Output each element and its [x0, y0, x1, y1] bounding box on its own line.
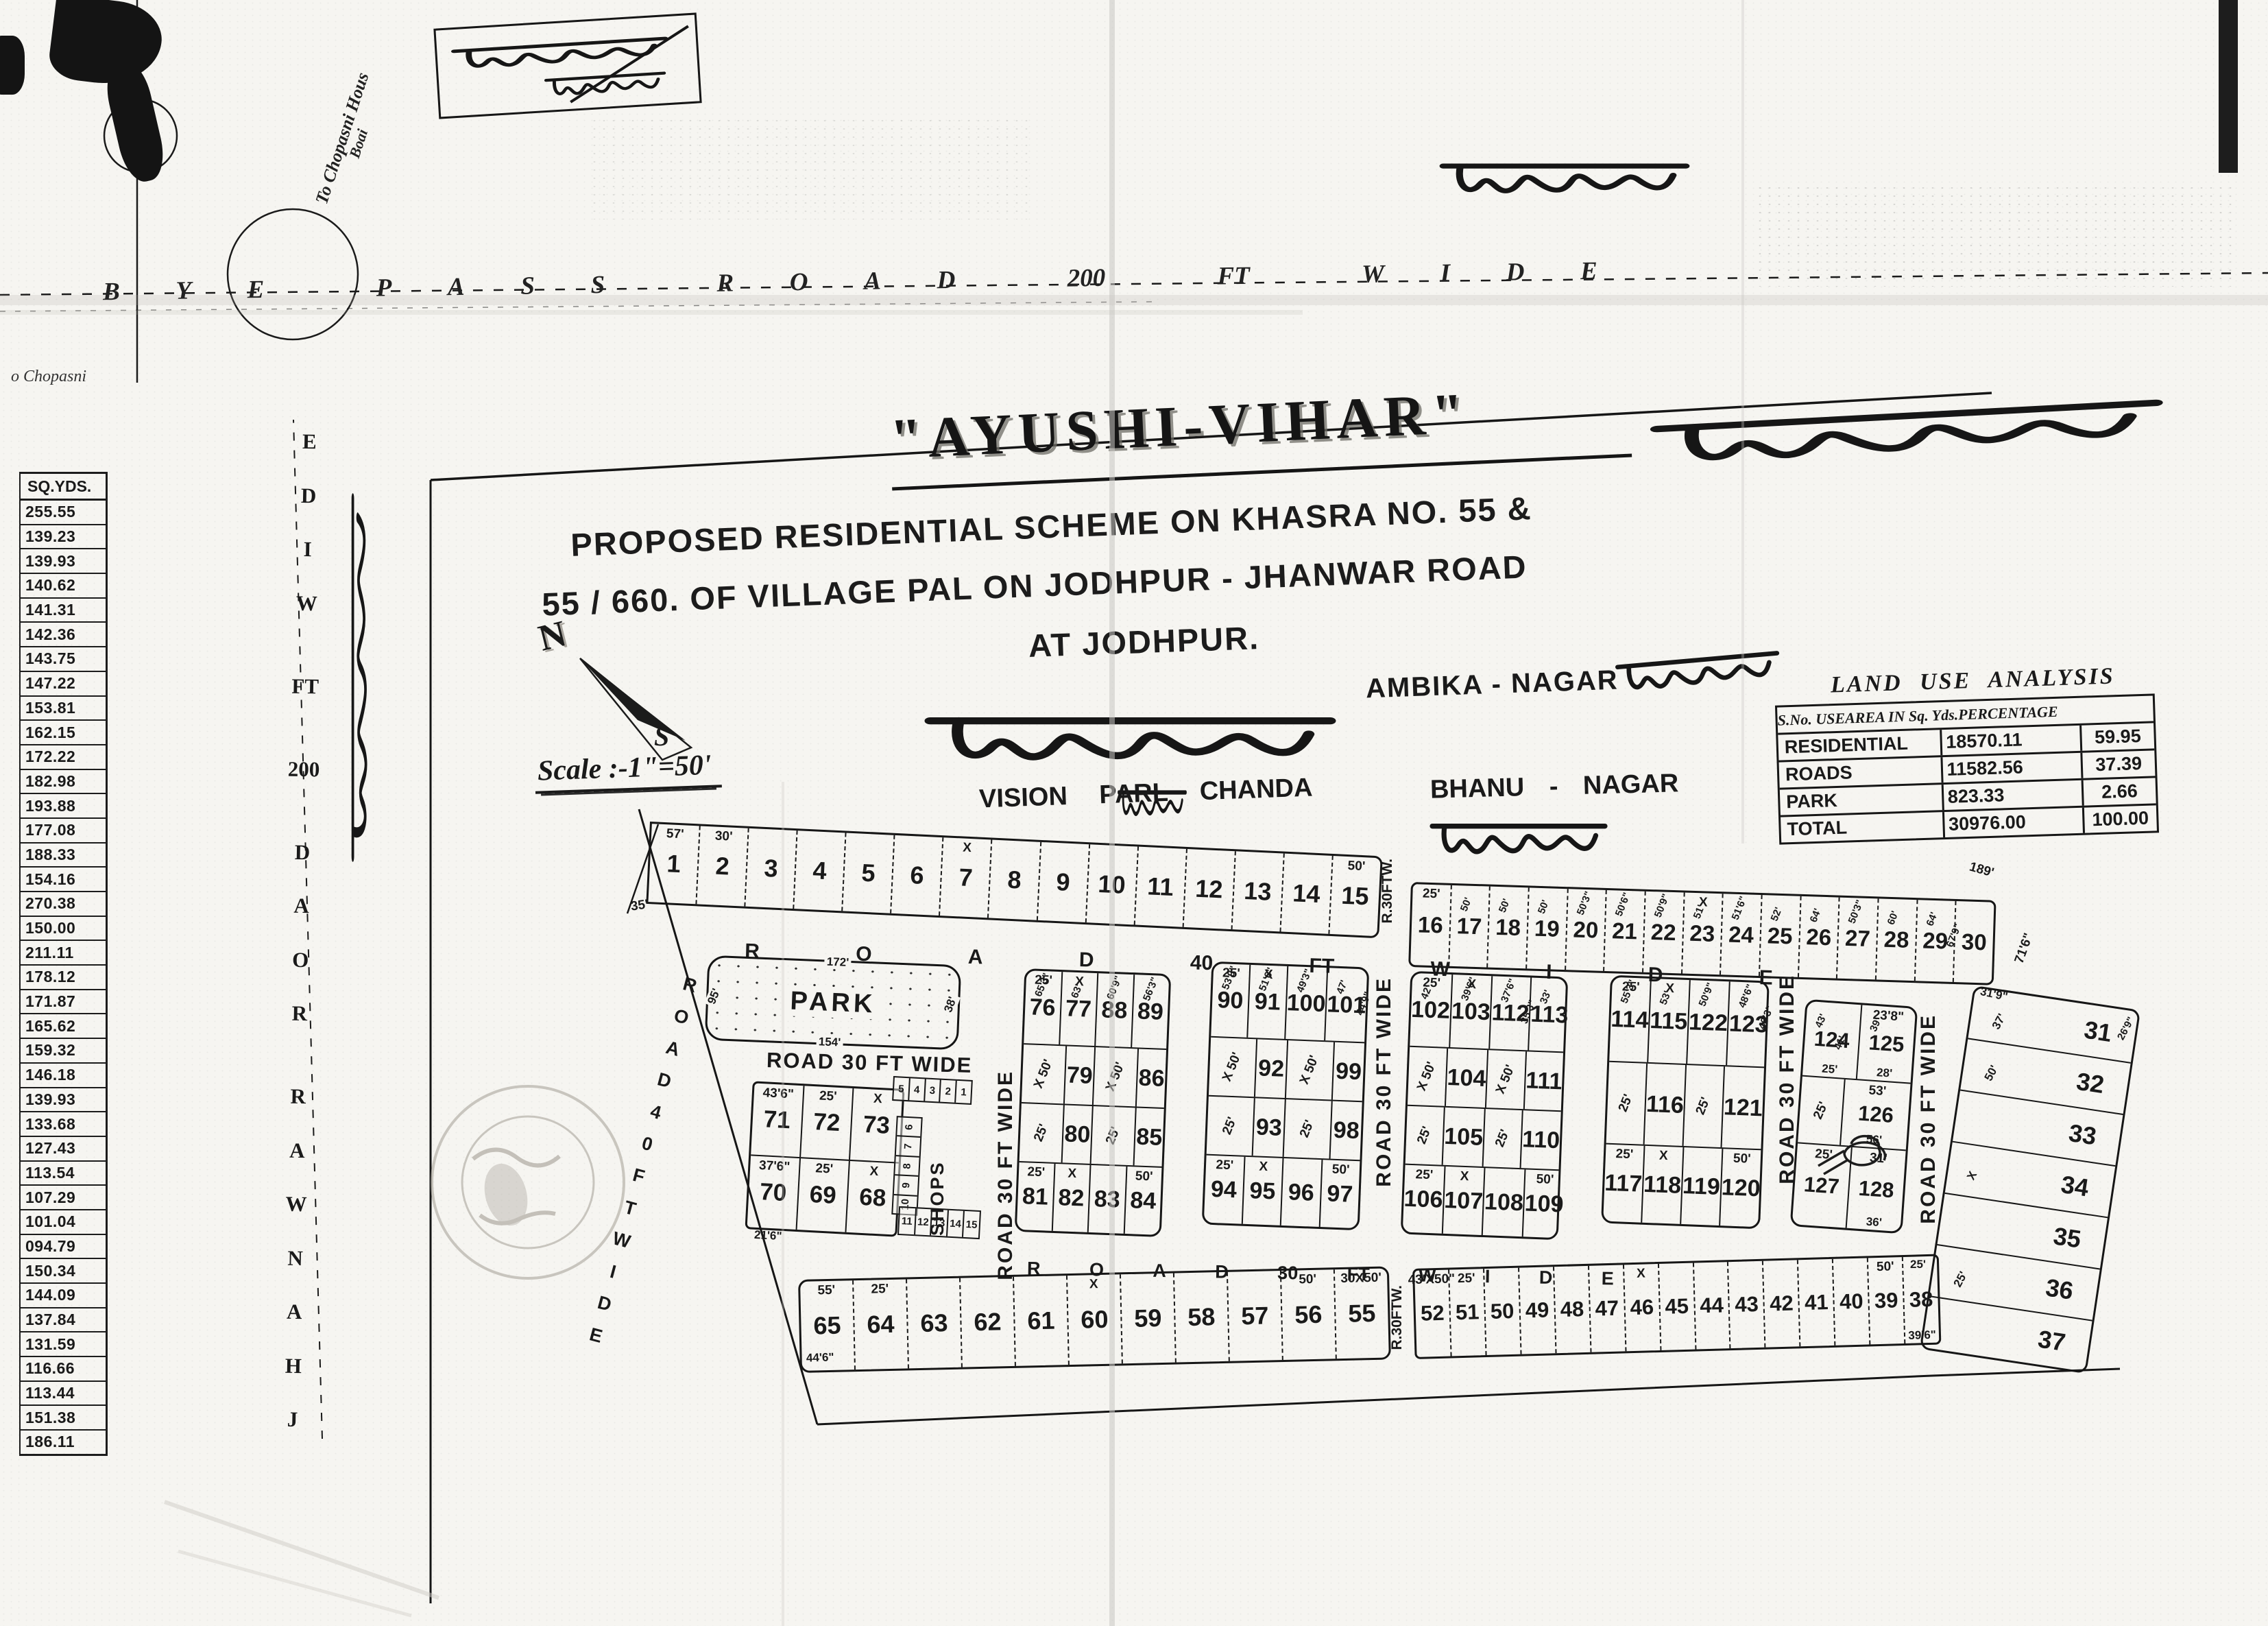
- plot-cell: 25'55'3"114: [1609, 977, 1652, 1062]
- plot-cell: 104: [1446, 1049, 1488, 1108]
- scale-label: Scale :-1"=50': [534, 748, 722, 793]
- plot-block-90-101: 25'53'9"90 X51'6"91 49'3"100 47'44'9"101…: [1202, 961, 1370, 1231]
- plot-cell: 49: [1519, 1267, 1556, 1354]
- plot-cell: 25'127: [1792, 1143, 1853, 1228]
- plot-cell: 25' 64: [854, 1279, 909, 1370]
- sqyds-value: 188.33: [21, 844, 106, 868]
- plot-cell: 49'3"100: [1286, 966, 1329, 1040]
- plot-cell: 40: [1833, 1258, 1870, 1345]
- plot-row-1-15: 57' 1 30' 2 3 4 5: [646, 822, 1382, 938]
- plot-block-114-123: 25'55'3"114 X53'115 50'9"122 48'6"46'3"1…: [1601, 975, 1770, 1230]
- plot-number: 14: [1292, 878, 1320, 909]
- sqyds-value: 116.66: [21, 1357, 106, 1382]
- plot-cell: 5: [843, 833, 895, 913]
- road-30ft-label: ROAD 30 FT WIDE: [767, 1048, 973, 1078]
- plot-number: 5: [861, 859, 876, 888]
- dimension-label: 189': [1968, 859, 1996, 881]
- road-letter: O: [671, 1005, 690, 1029]
- land-use-use: ROADS: [1779, 759, 1941, 785]
- plot-number: 15: [1340, 881, 1369, 911]
- plot-number: 10: [1098, 870, 1126, 900]
- plot-cell: 57' 1: [648, 824, 700, 904]
- plot-cell: 47'44'9"101: [1325, 968, 1367, 1042]
- ambika-nagar-label: AMBIKA - NAGAR: [1365, 665, 1619, 705]
- scan-noise: [590, 117, 1028, 219]
- sqyds-value: 162.15: [21, 721, 106, 745]
- plot-cell: 25'117: [1603, 1145, 1645, 1223]
- sqyds-value: 094.79: [21, 1235, 106, 1260]
- plot-number: 38: [1909, 1287, 1933, 1313]
- sqyds-value: 144.09: [21, 1284, 106, 1308]
- plot-cell: 48'6"46'3"123: [1728, 981, 1770, 1066]
- sqyds-value: 113.44: [21, 1382, 106, 1407]
- plot-cell: 4: [794, 830, 846, 911]
- road-letter: E: [247, 274, 264, 304]
- scan-artifact: [101, 57, 169, 185]
- sqyds-value: 151.38: [21, 1406, 106, 1431]
- sqyds-value: 139.93: [21, 1088, 106, 1113]
- plot-cell: 80: [1063, 1105, 1094, 1164]
- plot-cell: 13: [1232, 851, 1284, 931]
- plot-cell: 50'84: [1124, 1167, 1161, 1235]
- road-letter: J: [287, 1407, 298, 1432]
- road-letter: W: [610, 1228, 633, 1253]
- shop-cell: 11: [899, 1208, 917, 1234]
- plot-number: 6: [910, 861, 925, 890]
- scan-artifact: [47, 0, 166, 90]
- plot-cell: 11: [1135, 847, 1187, 927]
- plot-dim-cell: 25': [1020, 1103, 1065, 1162]
- shop-cell: 8: [895, 1156, 919, 1177]
- jhanwar-road-label: JHANWARROAD200FTWIDE: [276, 429, 326, 1433]
- plot-number: 59: [1134, 1304, 1162, 1333]
- sqyds-value: 139.23: [21, 525, 106, 550]
- sqyds-value: 211.11: [21, 941, 106, 966]
- sqyds-value: 142.36: [21, 623, 106, 647]
- scan-artifact: [0, 36, 25, 95]
- plot-cell: 43'6"71: [751, 1083, 804, 1157]
- road-letter: D: [937, 265, 955, 294]
- plot-number: 25: [1767, 922, 1793, 949]
- plot-number: 39: [1874, 1288, 1898, 1313]
- road-letter: 40: [1190, 951, 1213, 975]
- plot-number: 31: [2082, 1016, 2114, 1048]
- road-letter: R: [290, 1084, 306, 1109]
- plot-number: 1: [666, 849, 681, 878]
- plot-cell: 25'94: [1204, 1156, 1245, 1224]
- road-letter: R: [716, 268, 734, 298]
- plot-number: 52: [1421, 1301, 1445, 1326]
- plot-cell: 45: [1659, 1263, 1696, 1350]
- plot-cell: 50' 15: [1329, 856, 1380, 936]
- plot-cell: 8: [989, 840, 1041, 920]
- plot-number: 26: [1806, 924, 1832, 951]
- handwritten-title-note: [1639, 384, 2176, 481]
- scheme-title: "AYUSHI-VIHAR": [889, 373, 1632, 491]
- road-letter: O: [790, 267, 808, 296]
- sqyds-value: 141.31: [21, 599, 106, 623]
- land-use-header: AREA IN Sq. Yds.: [1845, 706, 1959, 727]
- road-letter: 200: [288, 756, 320, 782]
- plot-cell: 53'12656': [1841, 1079, 1910, 1149]
- road-letter: S: [520, 271, 535, 300]
- land-use-area: 11582.56: [1940, 753, 2081, 782]
- shop-cell: 9: [894, 1175, 918, 1196]
- plot-cell: 25'72: [801, 1086, 854, 1160]
- plot-cell: 30X50' 55: [1335, 1269, 1389, 1359]
- shop-cell: 3: [925, 1079, 941, 1101]
- plot-dim-cell: X 50': [1486, 1050, 1527, 1109]
- plot-number: 63: [920, 1308, 948, 1338]
- plot-number: 56: [1294, 1300, 1323, 1330]
- plot-cell: 105: [1443, 1108, 1486, 1167]
- plot-number: 64: [867, 1310, 895, 1339]
- road-letter: D: [301, 483, 317, 507]
- plot-number: 34: [2059, 1170, 2090, 1202]
- road-letter: R: [291, 1001, 307, 1026]
- sqyds-value: 140.62: [21, 574, 106, 599]
- sqyds-value: 159.32: [21, 1039, 106, 1064]
- plot-number: 42: [1770, 1291, 1794, 1317]
- north-arrow-s: S: [654, 720, 669, 752]
- plot-number: 43: [1735, 1292, 1759, 1317]
- plot-number: 61: [1027, 1306, 1055, 1336]
- plot-number: 60: [1081, 1305, 1109, 1335]
- plot-number: 2: [715, 852, 730, 881]
- dimension-label: 172': [824, 955, 851, 970]
- park-area: PARK 172' 154' 95' 38': [705, 955, 962, 1051]
- road-letter: F: [630, 1164, 647, 1188]
- road-letter: D: [1078, 948, 1094, 972]
- road-30ft-label-vertical: ROAD 30 FT WIDE: [1917, 1014, 1940, 1224]
- road-letter: T: [622, 1197, 638, 1220]
- land-use-use: PARK: [1780, 787, 1942, 813]
- plot-cell: 63: [907, 1278, 963, 1369]
- plot-cell: 50' 56: [1281, 1269, 1337, 1360]
- plot-cell: 116: [1645, 1064, 1687, 1146]
- road-40ft-diagonal-label: ROAD40FTWIDE: [576, 970, 710, 1350]
- plot-cell: 50'9"122: [1687, 980, 1730, 1065]
- road-letter: D: [655, 1069, 673, 1093]
- plot-cell: 79: [1065, 1047, 1096, 1105]
- shop-cell: 14: [948, 1210, 965, 1237]
- sqyds-value: 255.55: [21, 501, 106, 525]
- sqyds-value: 131.59: [21, 1332, 106, 1357]
- road-30ft-label-vertical: ROAD 30 FT WIDE: [994, 1070, 1017, 1280]
- plot-cell: 25'106: [1403, 1165, 1445, 1234]
- road-letter: A: [664, 1037, 682, 1061]
- plot-number: 11: [1147, 872, 1174, 902]
- plot-cell: 99: [1333, 1042, 1364, 1101]
- plot-cell: 44: [1693, 1262, 1730, 1349]
- land-use-percent: 37.39: [2080, 750, 2156, 778]
- road-letter: A: [287, 1300, 302, 1324]
- sqyds-value: 107.29: [21, 1186, 106, 1210]
- sqyds-header: SQ.YDS.: [21, 474, 106, 501]
- shop-cell: 1: [956, 1081, 971, 1103]
- plot-row-38-52: 43'X50" 52 25' 51 50 49: [1412, 1254, 1941, 1359]
- dimension-label: 38': [941, 993, 961, 1016]
- plot-number: 28: [1883, 926, 1909, 953]
- road-letter: FT: [1217, 261, 1250, 291]
- road-letter: D: [1506, 257, 1524, 287]
- plot-cell: 92: [1255, 1039, 1288, 1098]
- plot-dim-cell: 25': [1406, 1106, 1445, 1165]
- plot-cell: X118: [1642, 1146, 1684, 1224]
- plot-cell: X95: [1242, 1157, 1283, 1226]
- plot-dim-cell: 25': [1798, 1077, 1846, 1145]
- road-letter: 200: [1067, 263, 1105, 293]
- plot-block-76-89: 25'65'3"76 X63'77 60'9"88 56'3"89 X 50' …: [1015, 968, 1172, 1237]
- plot-number: 37: [2036, 1325, 2068, 1357]
- plot-number: 24: [1728, 922, 1754, 948]
- plot-cell: 60'9"88: [1096, 973, 1135, 1047]
- scanned-site-plan: BYEPASSROAD200FTWIDE To Chopasni Hous Bo…: [0, 0, 2268, 1626]
- sqyds-value: 133.68: [21, 1112, 106, 1137]
- sqyds-value: 186.11: [21, 1431, 106, 1454]
- plot-cell: 25' 51: [1449, 1269, 1486, 1356]
- plot-cell: 25'65'3"76: [1024, 970, 1063, 1044]
- plot-number: 46: [1630, 1295, 1654, 1320]
- plot-number: 44: [1700, 1293, 1724, 1318]
- land-use-use: RESIDENTIAL: [1778, 732, 1940, 758]
- sqyds-value: 113.54: [21, 1162, 106, 1186]
- plot-cell: 23'8"39'12528': [1857, 1005, 1916, 1082]
- handwritten-bai-pass: [1434, 152, 1695, 204]
- plot-number: 48: [1560, 1297, 1584, 1322]
- plot-dim-cell: X 50': [1094, 1047, 1139, 1106]
- road-letter: I: [1440, 258, 1450, 287]
- plot-number: 17: [1456, 913, 1482, 940]
- plot-row-55-65: 55' 65 25' 64 63 62 61: [798, 1266, 1391, 1373]
- land-use-area: 18570.11: [1940, 726, 2080, 755]
- plot-number: 62: [974, 1307, 1002, 1337]
- road-letter: 4: [648, 1101, 664, 1125]
- sqyds-value: 101.04: [21, 1210, 106, 1235]
- plot-number: 57: [1241, 1301, 1269, 1330]
- plot-number: 12: [1194, 874, 1223, 905]
- land-use-title: LAND USE ANALYSIS: [1831, 663, 2116, 698]
- plot-number: 41: [1805, 1290, 1829, 1315]
- plot-cell: 50'120: [1720, 1149, 1762, 1227]
- road-letter: D: [294, 839, 310, 864]
- sqyds-value: 127.43: [21, 1137, 106, 1162]
- plot-number: 55: [1348, 1299, 1376, 1328]
- plot-dim-cell: X 50': [1286, 1040, 1335, 1100]
- plot-cell: 57: [1228, 1271, 1283, 1361]
- sqyds-value: 137.84: [21, 1308, 106, 1333]
- plot-number: 33: [2067, 1119, 2099, 1151]
- plot-cell: 108: [1483, 1168, 1525, 1236]
- sqyds-value: 182.98: [21, 770, 106, 795]
- scheme-subtitle-3: AT JODHPUR.: [1028, 619, 1260, 665]
- plot-cell: 119: [1681, 1147, 1723, 1226]
- dimension-label: 21'6": [754, 1228, 782, 1243]
- shop-cell: 6: [897, 1117, 921, 1138]
- plot-cell: 93: [1253, 1098, 1286, 1157]
- plot-cell: 85: [1135, 1108, 1164, 1166]
- handwritten-jhanwar: [346, 486, 373, 870]
- plot-cell: 14: [1281, 854, 1333, 934]
- road-letter: FT: [291, 673, 319, 699]
- plot-number: 35: [2051, 1221, 2083, 1254]
- sqyds-value: 165.62: [21, 1014, 106, 1039]
- plot-cell: X 46: [1624, 1264, 1661, 1351]
- sqyds-value: 178.12: [21, 966, 106, 990]
- vision-parl-chanda-label: VISION PARL CHANDA: [978, 774, 1313, 815]
- plot-number: 58: [1187, 1302, 1216, 1332]
- dimension-label: 35': [630, 897, 649, 914]
- road-letter: H: [285, 1353, 302, 1378]
- sqyds-value: 150.00: [21, 917, 106, 942]
- plot-cell: X51'6"91: [1248, 965, 1288, 1039]
- plot-dim-cell: 25': [1606, 1062, 1648, 1145]
- road-letter: A: [967, 946, 983, 970]
- land-use-percent: 59.95: [2079, 723, 2155, 750]
- dimension-label: 154': [816, 1035, 843, 1050]
- handwritten-bhanu: [1426, 812, 1611, 865]
- sqyds-value: 139.93: [21, 549, 106, 574]
- plot-number: 45: [1665, 1294, 1689, 1319]
- plot-dim-cell: 25': [1484, 1109, 1523, 1168]
- plot-number: 18: [1495, 914, 1521, 941]
- plot-cell: 50' 39: [1868, 1257, 1905, 1344]
- plot-cell: 83: [1089, 1165, 1127, 1234]
- plot-number: 8: [1007, 865, 1022, 895]
- plot-cell: 43'41'12425': [1802, 1001, 1862, 1079]
- land-use-use: TOTAL: [1781, 814, 1942, 840]
- plot-cell: 41: [1798, 1259, 1835, 1346]
- plot-cell: X82: [1052, 1164, 1091, 1232]
- plot-cell: X 60: [1067, 1274, 1123, 1365]
- plot-cell: 33'113: [1529, 978, 1569, 1052]
- plot-dim-cell: 25': [1091, 1106, 1137, 1165]
- round-stamp: [432, 1086, 624, 1278]
- road-letter: W: [1362, 259, 1385, 289]
- plot-cell: 47: [1589, 1265, 1626, 1352]
- handwritten-ambika: [1610, 640, 1785, 703]
- plot-cell: 10: [1086, 844, 1138, 924]
- plot-block-68-73: 43'6"71 25'72 X73 37'6"70 25'69 X68: [745, 1081, 904, 1236]
- plot-cell: 111: [1525, 1051, 1563, 1110]
- road-letter: P: [376, 273, 391, 302]
- sqyds-value: 143.75: [21, 647, 106, 672]
- plot-number: 49: [1525, 1298, 1549, 1323]
- shop-cell: 15: [963, 1211, 980, 1238]
- shops-label: SHOPS: [927, 1126, 948, 1236]
- road-letter: A: [289, 1138, 305, 1162]
- plot-cell: 31'12836': [1847, 1147, 1906, 1232]
- road-letter: Y: [176, 276, 191, 305]
- plot-cell: 43: [1728, 1261, 1765, 1348]
- scan-noise: [1755, 184, 2235, 287]
- plot-cell: 37'6"70: [747, 1156, 801, 1230]
- plot-cell: X68: [847, 1161, 899, 1235]
- plot-number: 29: [1922, 927, 1949, 954]
- plot-number: 3: [764, 854, 779, 883]
- land-use-area: 823.33: [1941, 780, 2082, 810]
- road-letter: B: [103, 276, 120, 306]
- scan-fold: [1109, 0, 1115, 1626]
- plot-block-124-128: 43'41'12425' 23'8"39'12528' 25' 53'12656…: [1790, 999, 1918, 1234]
- sqyds-value: 153.81: [21, 697, 106, 721]
- plot-cell: 6: [891, 835, 943, 916]
- plot-cell: 30: [1954, 901, 1994, 983]
- road-letter: E: [1580, 256, 1597, 285]
- sqyds-value: 150.34: [21, 1259, 106, 1284]
- plot-cell: 121: [1722, 1066, 1764, 1149]
- sqyds-value: 177.08: [21, 819, 106, 844]
- sqyds-value: 193.88: [21, 794, 106, 819]
- plot-cell: 62: [961, 1277, 1016, 1367]
- plot-cell: X39'6"103: [1450, 975, 1493, 1049]
- plot-cell: 25'42'102: [1410, 973, 1453, 1047]
- scan-artifact: [2219, 0, 2238, 173]
- plot-cell: X107: [1443, 1167, 1486, 1235]
- land-use-percent: 2.66: [2081, 778, 2156, 805]
- plot-cell: 37'6"35'3"112: [1491, 976, 1532, 1050]
- plot-dim-cell: X 50': [1408, 1047, 1448, 1106]
- shops-column: 678910: [891, 1116, 922, 1216]
- plot-number: 65: [813, 1311, 841, 1341]
- sqyds-value: 147.22: [21, 672, 106, 697]
- scan-streak: [0, 310, 1303, 315]
- road-letter: E: [302, 429, 317, 454]
- plot-cell: 9: [1037, 842, 1089, 922]
- plot-cell: 50'3" 27: [1837, 898, 1879, 980]
- plot-cell: 60' 28: [1877, 898, 1918, 981]
- plot-number: 32: [2075, 1067, 2106, 1099]
- plot-cell: 48: [1554, 1266, 1591, 1353]
- road-letter: I: [607, 1261, 618, 1283]
- plot-number: 27: [1845, 925, 1871, 952]
- plot-dim-cell: 25': [1284, 1099, 1333, 1159]
- plot-cell: 3: [745, 828, 797, 909]
- road-letter: E: [588, 1324, 605, 1348]
- plot-cell: 25'69: [797, 1158, 850, 1232]
- plot-column-31-37: 37' 31 26'9" 50' 32 33 X 34: [1920, 985, 2141, 1374]
- dimension-label: 71'6": [2012, 931, 2037, 966]
- road-letter: A: [864, 266, 881, 296]
- shops-row-top: 54321: [892, 1076, 973, 1105]
- shop-cell: 7: [896, 1137, 920, 1158]
- plot-number: 16: [1417, 911, 1443, 938]
- plot-cell: 64' 67'9" 29: [1916, 900, 1957, 982]
- road-letter: A: [293, 894, 309, 918]
- sqyds-value: 270.38: [21, 892, 106, 917]
- land-use-percent: 100.00: [2082, 805, 2157, 833]
- to-chopasni-label: To Chopasni Hous Boai: [302, 38, 398, 244]
- plot-number: 51: [1455, 1300, 1479, 1325]
- road-letter: I: [303, 537, 312, 562]
- handwritten-vision: [916, 701, 1344, 776]
- plot-number: 22: [1650, 919, 1676, 946]
- plot-block-102-113: 25'42'102 X39'6"103 37'6"35'3"112 33'113…: [1401, 971, 1569, 1241]
- plot-number: 13: [1243, 876, 1272, 907]
- plot-number: 19: [1534, 916, 1560, 942]
- sqyds-table: SQ.YDS. 255.55139.23139.93140.62141.3114…: [19, 472, 108, 1456]
- r30ftw-label: R.30FTW.: [1389, 1285, 1406, 1350]
- plot-number: 40: [1839, 1289, 1863, 1315]
- road-30ft-label-vertical: ROAD 30 FT WIDE: [1373, 977, 1396, 1187]
- plot-cell: 64' 26: [1799, 896, 1840, 979]
- road-letter: D: [595, 1292, 614, 1316]
- shop-cell: 5: [893, 1077, 910, 1100]
- chopasni-label: o Chopasni: [11, 368, 86, 386]
- land-use-header: PERCENTAGE: [1958, 702, 2058, 724]
- road-letter: R: [681, 973, 699, 997]
- plot-cell: 110: [1521, 1110, 1561, 1169]
